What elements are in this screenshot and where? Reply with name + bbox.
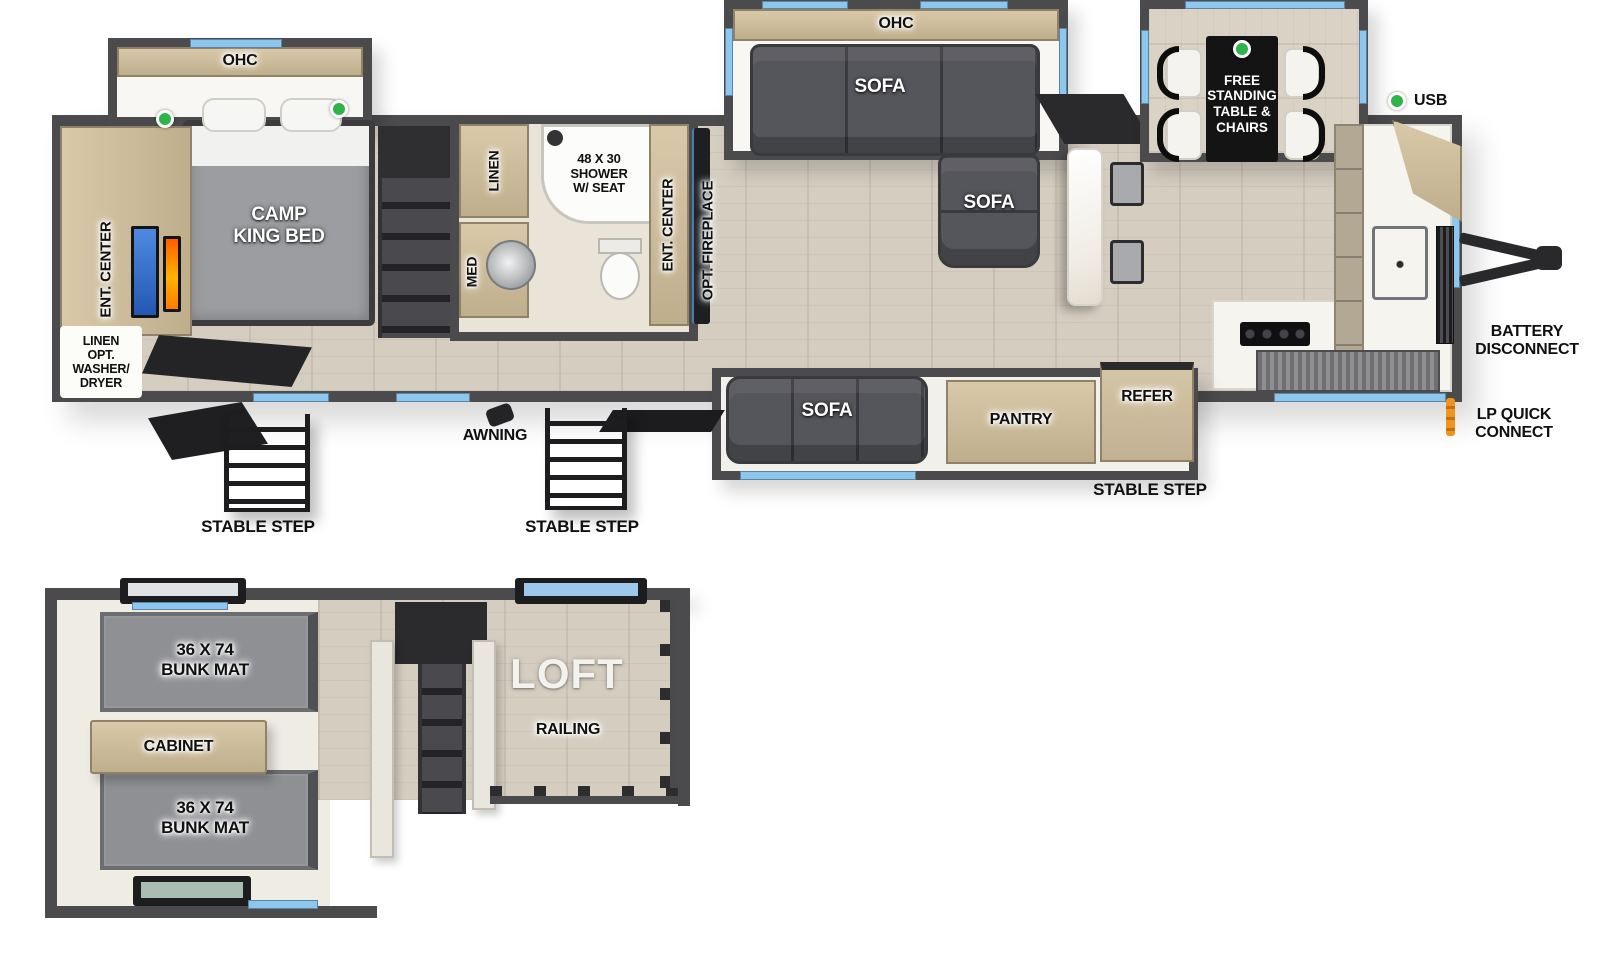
sofa-label: SOFA bbox=[938, 190, 1040, 216]
usb-indicator-icon bbox=[330, 100, 348, 118]
bedroom-window bbox=[190, 39, 282, 48]
living-ohc-label: OHC bbox=[733, 12, 1059, 36]
dining-window bbox=[1185, 1, 1345, 9]
opt-fireplace-label: OPT. FIREPLACE bbox=[694, 158, 722, 322]
bedroom-entry-door bbox=[253, 393, 329, 402]
living-window bbox=[1059, 28, 1067, 96]
loft-left-wall bbox=[45, 588, 57, 918]
cooktop bbox=[1240, 322, 1310, 346]
center-stable-step bbox=[545, 408, 627, 510]
hitch-arm bbox=[1459, 232, 1545, 262]
skylight-glass bbox=[128, 583, 238, 596]
door-side-window bbox=[740, 471, 916, 480]
cabinet-label: CABINET bbox=[90, 736, 267, 758]
lp-quick-connect-label: LP QUICK CONNECT bbox=[1458, 404, 1570, 444]
pantry-label: PANTRY bbox=[946, 408, 1096, 432]
hitch-arm bbox=[1459, 257, 1545, 287]
rear-stable-step bbox=[224, 414, 310, 512]
linen-label: LINEN bbox=[459, 124, 529, 218]
loft-staircase bbox=[378, 178, 458, 338]
usb-label: USB bbox=[1414, 92, 1474, 112]
dining-window bbox=[1141, 30, 1149, 104]
loft-window bbox=[132, 602, 228, 610]
refer bbox=[1100, 362, 1194, 462]
railing-label: RAILING bbox=[508, 720, 628, 740]
shower-label: 48 X 30 SHOWER W/ SEAT bbox=[549, 128, 649, 220]
skylight-glass bbox=[524, 583, 638, 596]
usb-indicator-icon bbox=[156, 110, 174, 128]
loft-railing bbox=[490, 786, 678, 804]
med-label: MED bbox=[457, 236, 485, 308]
bedroom-ent-center-label: ENT. CENTER bbox=[92, 208, 120, 330]
main-entry-door bbox=[1274, 393, 1446, 402]
floorplan-canvas: OHC CAMP KING BED ENT. CENTER LINEN OPT.… bbox=[0, 0, 1600, 959]
stairs-landing bbox=[378, 126, 458, 178]
bath-sink bbox=[486, 240, 536, 290]
stable-step-center-label: STABLE STEP bbox=[514, 517, 650, 537]
bar-stool bbox=[1110, 162, 1144, 206]
bunk-mat-top-label: 36 X 74 BUNK MAT bbox=[100, 636, 310, 684]
stable-step-door-label: STABLE STEP bbox=[1082, 480, 1218, 500]
sectional-sofa bbox=[750, 44, 1040, 156]
fireplace-icon bbox=[163, 236, 181, 312]
battery-disconnect-label: BATTERY DISCONNECT bbox=[1452, 320, 1600, 362]
kitchen-sink bbox=[1372, 226, 1428, 300]
bedroom-ohc-label: OHC bbox=[117, 49, 363, 73]
shower-head-icon bbox=[547, 130, 563, 146]
loft-bottom-wall bbox=[45, 906, 377, 918]
sofa-label: SOFA bbox=[838, 74, 922, 100]
stairwell-wall bbox=[472, 640, 496, 810]
stable-step-rear-label: STABLE STEP bbox=[190, 517, 326, 537]
kitchen-island bbox=[1067, 148, 1103, 306]
linen-washer-dryer-label: LINEN OPT. WASHER/ DRYER bbox=[60, 326, 142, 398]
living-window bbox=[920, 1, 1008, 9]
refer-label: REFER bbox=[1100, 386, 1194, 408]
loft-label: LOFT bbox=[505, 650, 629, 698]
loft-right-wall bbox=[678, 588, 690, 806]
free-standing-table-label: FREE STANDING TABLE & CHAIRS bbox=[1206, 52, 1278, 156]
skylight-glass bbox=[141, 882, 243, 898]
usb-indicator-icon bbox=[1388, 92, 1406, 110]
hitch-coupler bbox=[1536, 246, 1562, 270]
entry-mat bbox=[1256, 350, 1440, 392]
bar-stool bbox=[1110, 240, 1144, 284]
loft-window bbox=[248, 900, 318, 909]
living-window bbox=[762, 1, 848, 9]
lp-connector-icon bbox=[1446, 398, 1455, 436]
living-window bbox=[725, 28, 733, 96]
loft-railing bbox=[660, 600, 678, 788]
awning-marker-icon bbox=[485, 402, 516, 428]
bath-ent-center-label: ENT. CENTER bbox=[652, 150, 684, 300]
awning-label: AWNING bbox=[440, 427, 550, 445]
bedroom-tv bbox=[131, 226, 159, 318]
stairwell-wall bbox=[370, 640, 394, 858]
bed-sheet bbox=[189, 126, 369, 166]
sofa-label: SOFA bbox=[726, 398, 928, 424]
camp-king-bed-label: CAMP KING BED bbox=[189, 200, 369, 252]
center-entry-door bbox=[396, 393, 470, 402]
usb-indicator-icon bbox=[1233, 40, 1251, 58]
dining-window bbox=[1359, 30, 1367, 104]
bunk-mat-bottom-label: 36 X 74 BUNK MAT bbox=[100, 794, 310, 842]
loft-stairs-down bbox=[418, 664, 466, 814]
bed-pillow bbox=[202, 98, 266, 132]
toilet-bowl bbox=[600, 252, 640, 300]
